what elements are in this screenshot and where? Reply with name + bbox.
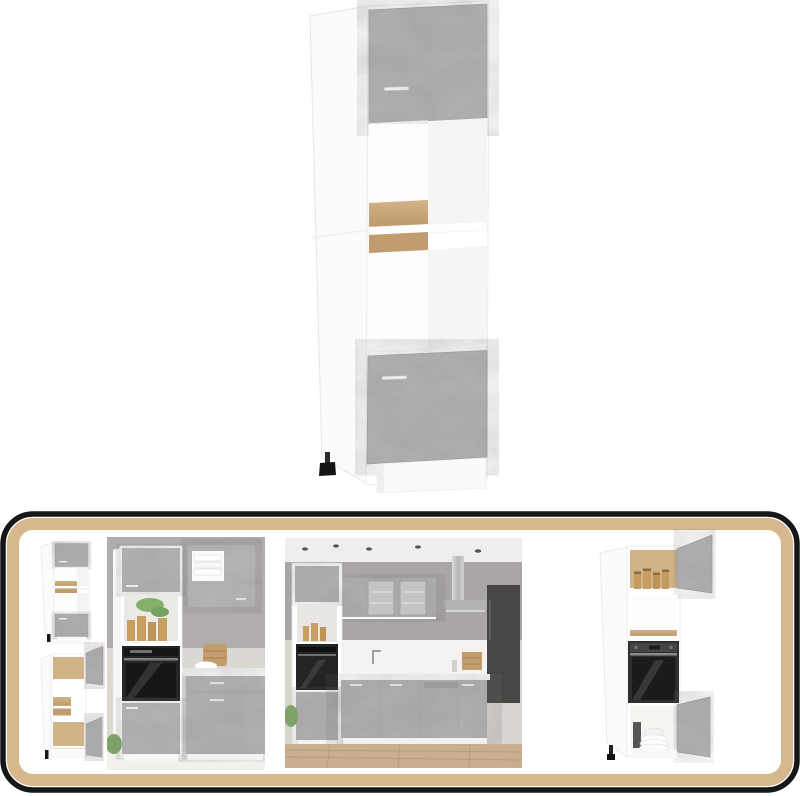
cabinet-foot-stem	[325, 452, 330, 464]
mini-open-bottom-interior	[53, 722, 84, 749]
jar	[127, 620, 135, 642]
cabinet-side-panel	[310, 6, 368, 484]
product-gallery-svg	[0, 0, 800, 796]
floor-plant	[106, 734, 122, 754]
scene-plant	[284, 705, 298, 727]
cabinet-plinth	[377, 458, 486, 493]
mini-bottom-door	[55, 614, 88, 637]
mini-top-door	[55, 544, 88, 567]
open-oven-handle	[630, 653, 677, 656]
base-cabinets	[186, 676, 265, 754]
scene-countertop	[340, 674, 490, 680]
plinth-shade	[377, 464, 384, 493]
mini-open-foot	[45, 750, 49, 759]
hood-chimney	[452, 556, 464, 602]
main-cabinet-render[interactable]	[310, 1, 489, 493]
glass-door	[400, 581, 426, 615]
lower-niche-back	[369, 253, 428, 352]
thumb-cabinet-closed-small[interactable]	[41, 542, 89, 643]
thumb-kitchen-cabinet-oven[interactable]	[106, 537, 265, 770]
dishwasher-strip	[424, 682, 458, 688]
dark-unit	[487, 585, 520, 703]
mini-foot	[47, 634, 51, 642]
oak-shelf-lower	[369, 232, 428, 253]
bottom-door-handle	[382, 376, 407, 380]
cabinet-bottom-door	[367, 351, 487, 465]
top-door-handle	[384, 87, 409, 91]
oven-handle	[124, 658, 178, 661]
niche-right-wall	[428, 118, 487, 227]
mini-open-top-door	[86, 646, 103, 685]
mini-open-top-interior	[53, 657, 84, 681]
canister	[633, 722, 641, 748]
scene-basket	[462, 652, 482, 670]
mini-handle	[59, 561, 67, 562]
lower-niche-right-wall	[428, 246, 487, 349]
cabinet-top-door	[369, 4, 487, 124]
cabinet-foot	[319, 462, 336, 476]
faucet	[372, 652, 374, 664]
scene-ceiling	[285, 538, 522, 562]
open-bottom-door	[677, 697, 710, 757]
thumb-kitchen-scene[interactable]	[284, 538, 522, 768]
mini-oak-shelf	[55, 581, 77, 586]
open-oven-display	[649, 646, 660, 650]
door-handle	[210, 699, 224, 701]
hood-canopy	[443, 600, 488, 612]
scene-base-cabinets	[341, 680, 487, 738]
glass-door	[368, 581, 394, 615]
mini-open-bottom-door	[86, 717, 102, 757]
wood-floor	[285, 744, 522, 768]
open-cabinet-foot	[607, 754, 615, 760]
oven-display	[130, 650, 152, 653]
oak-shelf-upper	[369, 200, 428, 227]
upper-cabinet-handle	[236, 598, 246, 600]
open-oak-shelf	[630, 630, 677, 636]
countertop	[182, 668, 265, 676]
tall-cabinet-bottom-door	[122, 703, 180, 754]
drawer-handle	[210, 682, 224, 684]
product-listing-image	[0, 0, 800, 796]
